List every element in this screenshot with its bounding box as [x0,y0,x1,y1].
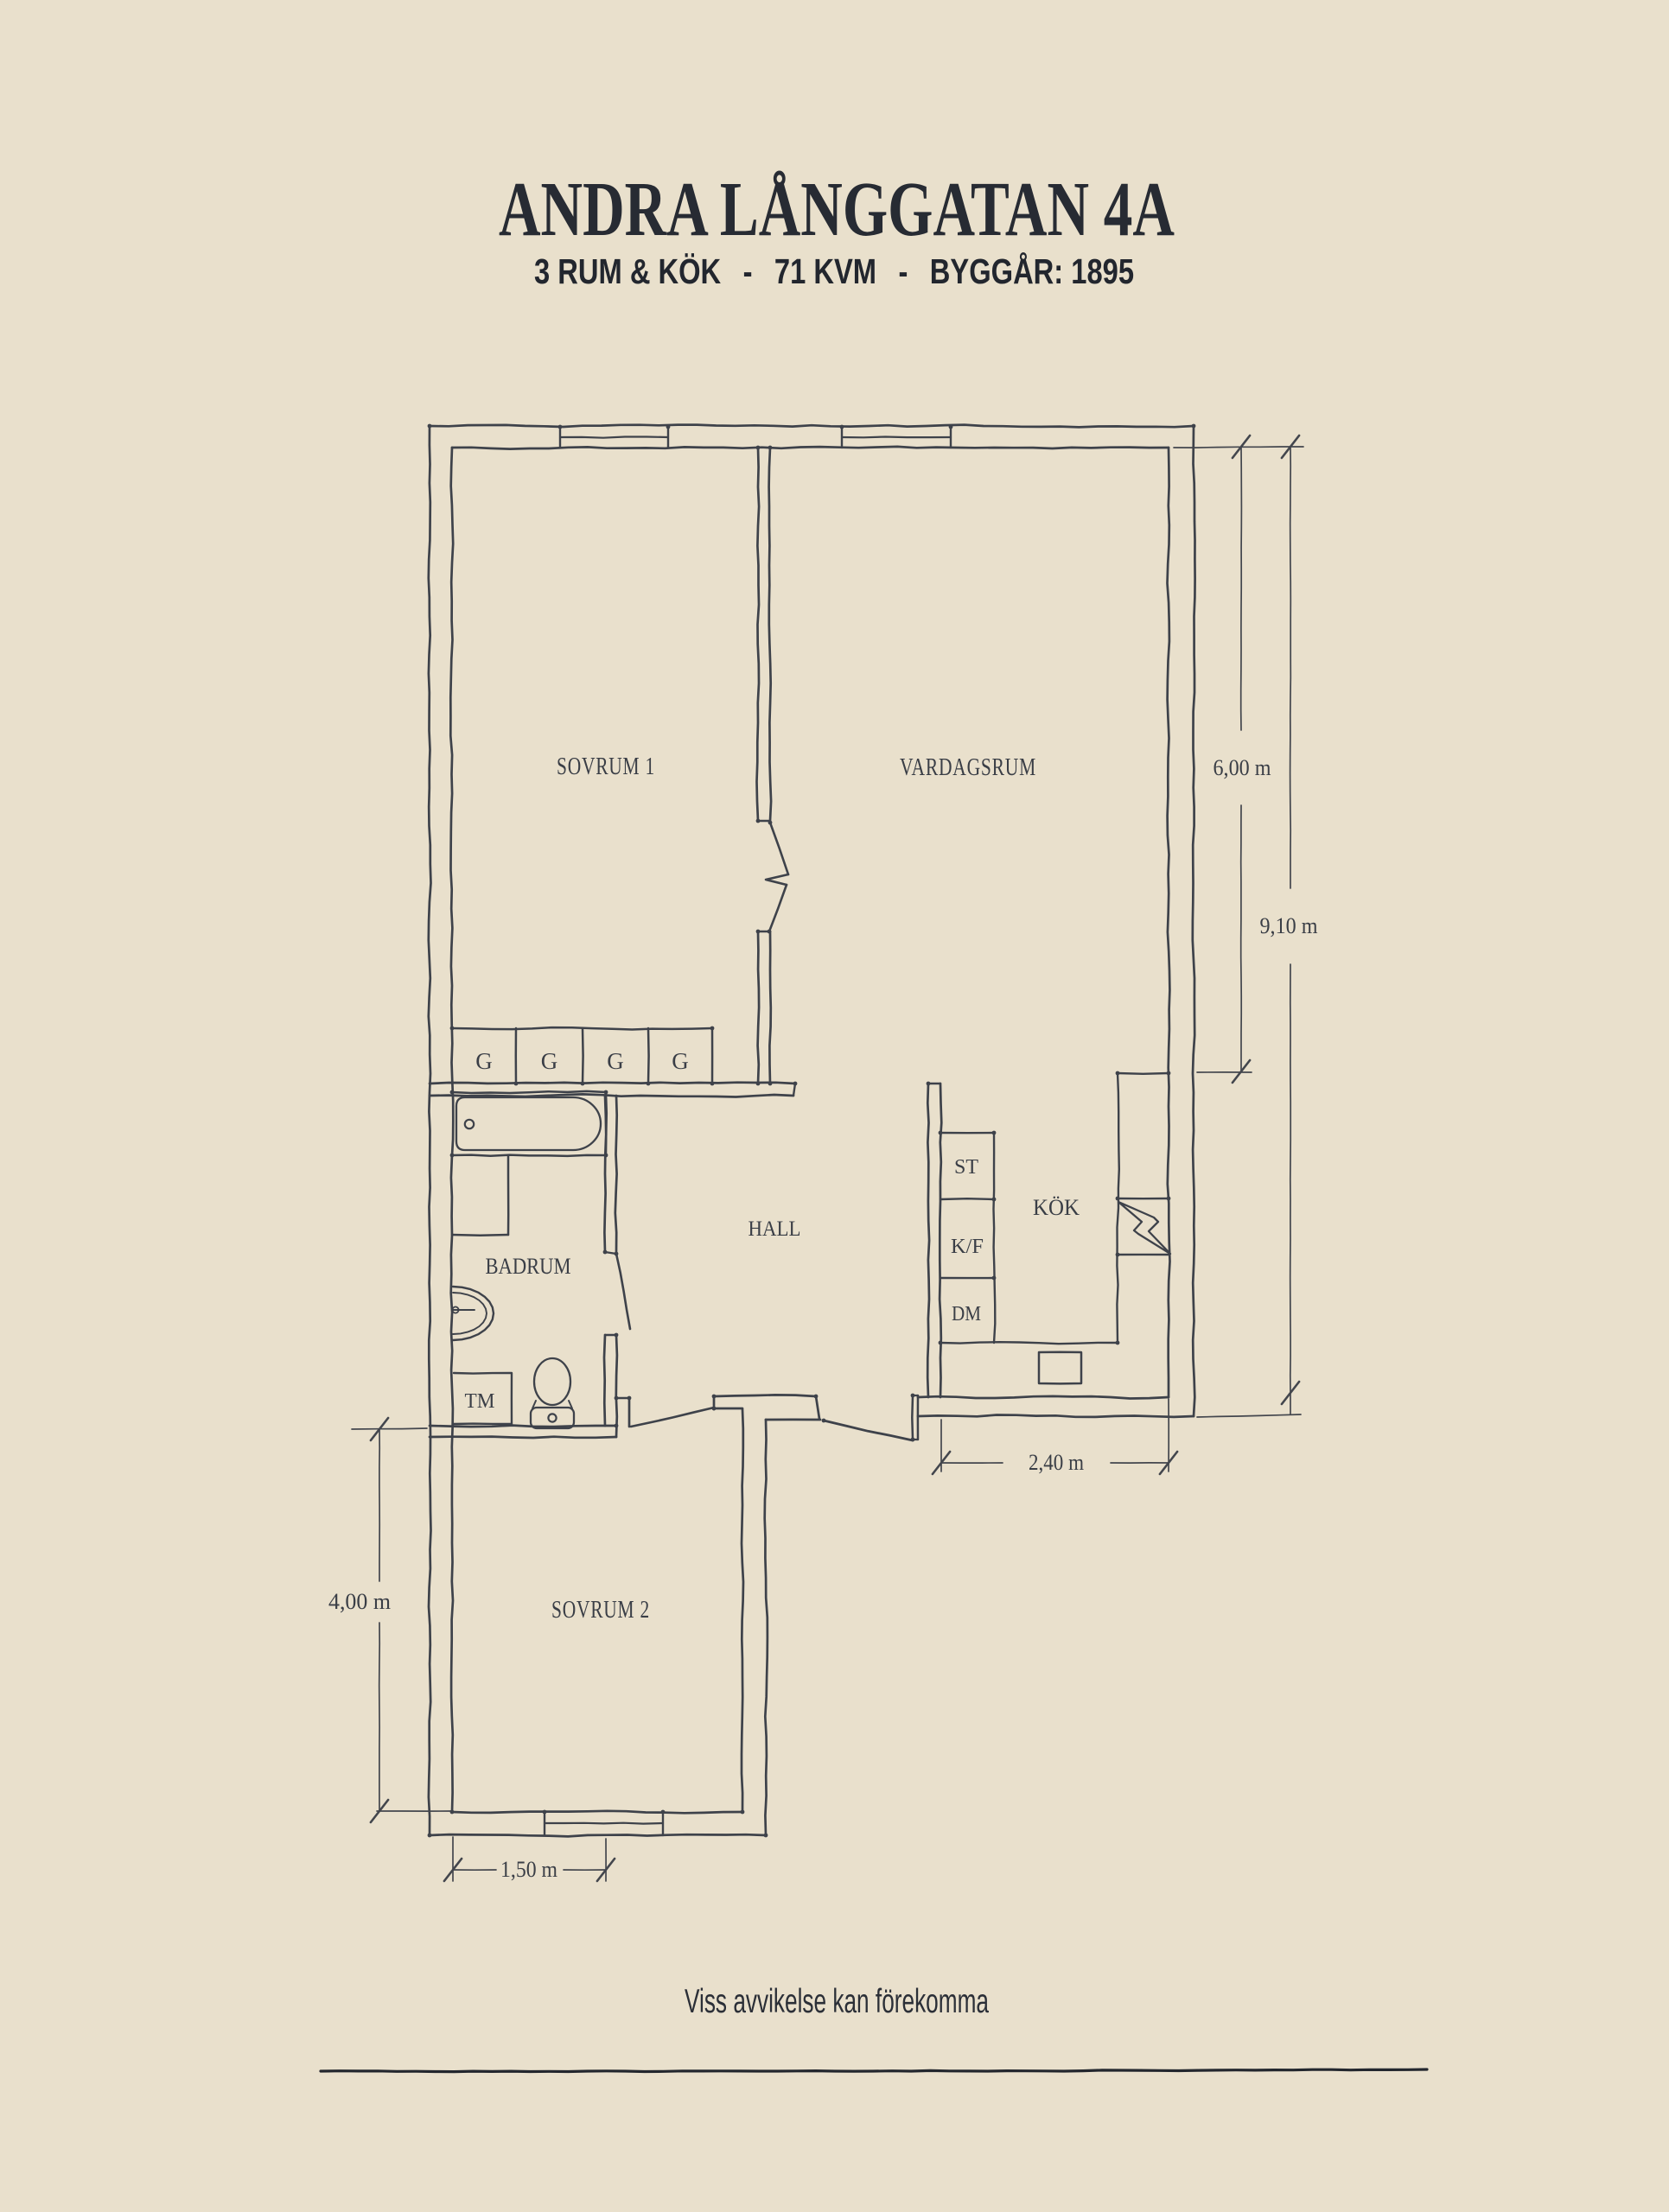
svg-text:KÖK: KÖK [1033,1195,1080,1220]
svg-text:2,40 m: 2,40 m [1029,1450,1084,1475]
svg-text:6,00 m: 6,00 m [1214,755,1271,780]
svg-text:DM: DM [952,1303,981,1325]
svg-text:ST: ST [954,1156,978,1179]
svg-text:3 RUM & KÖK - 71 KVM - BYG: 3 RUM & KÖK - 71 KVM - BYGGÅR: 1895 [534,251,1134,291]
svg-text:ANDRA LÅNGGATAN 4A: ANDRA LÅNGGATAN 4A [499,167,1175,252]
svg-text:VARDAGSRUM: VARDAGSRUM [900,754,1036,781]
svg-text:HALL: HALL [749,1217,801,1241]
svg-text:BADRUM: BADRUM [486,1254,571,1279]
svg-text:K/F: K/F [951,1236,984,1258]
svg-text:9,10 m: 9,10 m [1260,913,1318,938]
svg-text:SOVRUM 1: SOVRUM 1 [557,753,655,780]
svg-text:G: G [541,1048,558,1074]
svg-text:SOVRUM 2: SOVRUM 2 [551,1597,650,1624]
svg-text:G: G [475,1048,493,1074]
svg-text:Viss avvikelse kan förekomma: Viss avvikelse kan förekomma [685,1983,989,2020]
svg-text:TM: TM [465,1390,495,1413]
svg-text:4,00 m: 4,00 m [328,1589,391,1614]
svg-text:G: G [607,1048,624,1074]
svg-text:G: G [672,1048,689,1074]
svg-text:1,50 m: 1,50 m [500,1857,557,1882]
